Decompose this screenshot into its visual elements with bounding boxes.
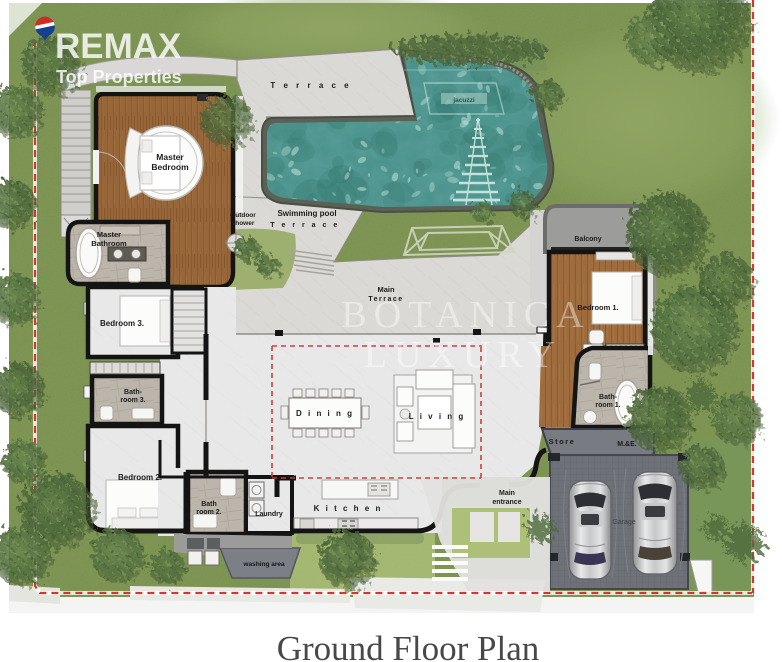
svg-text:Outdoor: Outdoor	[230, 212, 256, 219]
svg-text:T e r r a c e: T e r r a c e	[270, 81, 351, 90]
svg-text:BOTANICA: BOTANICA	[341, 294, 590, 336]
svg-text:Top Properties: Top Properties	[56, 67, 182, 87]
svg-text:Bath-: Bath-	[599, 394, 618, 401]
svg-text:room 3.: room 3.	[120, 397, 145, 404]
svg-text:room 2.: room 2.	[196, 509, 221, 516]
svg-text:Balcony: Balcony	[574, 236, 601, 243]
svg-text:M.&E.: M.&E.	[617, 441, 637, 448]
svg-text:jacuzzi: jacuzzi	[452, 97, 475, 104]
svg-text:Bath: Bath	[201, 501, 217, 508]
svg-text:room 1.: room 1.	[595, 402, 620, 409]
svg-text:washing area: washing area	[242, 561, 285, 568]
svg-text:LUXURY: LUXURY	[364, 334, 562, 376]
svg-text:Garage: Garage	[612, 519, 635, 526]
svg-text:shower: shower	[232, 220, 255, 227]
svg-text:Bath-: Bath-	[124, 389, 143, 396]
svg-text:REMAX: REMAX	[55, 27, 182, 66]
svg-text:Ground Floor Plan: Ground Floor Plan	[277, 629, 540, 662]
svg-text:Main: Main	[377, 285, 395, 294]
svg-text:D i n i n g: D i n i n g	[296, 409, 354, 418]
svg-text:L i v i n g: L i v i n g	[409, 412, 466, 421]
svg-text:Main: Main	[499, 490, 515, 497]
svg-text:Bedroom: Bedroom	[151, 162, 189, 172]
svg-text:Laundry: Laundry	[255, 511, 283, 518]
svg-text:entrance: entrance	[492, 499, 521, 506]
svg-text:Master: Master	[156, 152, 184, 162]
svg-text:Master: Master	[97, 230, 121, 239]
svg-text:Bedroom 2.: Bedroom 2.	[118, 473, 162, 482]
svg-text:Store: Store	[549, 437, 576, 446]
svg-text:K i t c h e n: K i t c h e n	[314, 504, 383, 513]
svg-text:T e r r a c e: T e r r a c e	[270, 222, 339, 229]
svg-text:Swimming pool: Swimming pool	[277, 209, 336, 218]
svg-text:Bathroom: Bathroom	[91, 239, 127, 248]
svg-text:Bedroom 3.: Bedroom 3.	[100, 319, 144, 328]
